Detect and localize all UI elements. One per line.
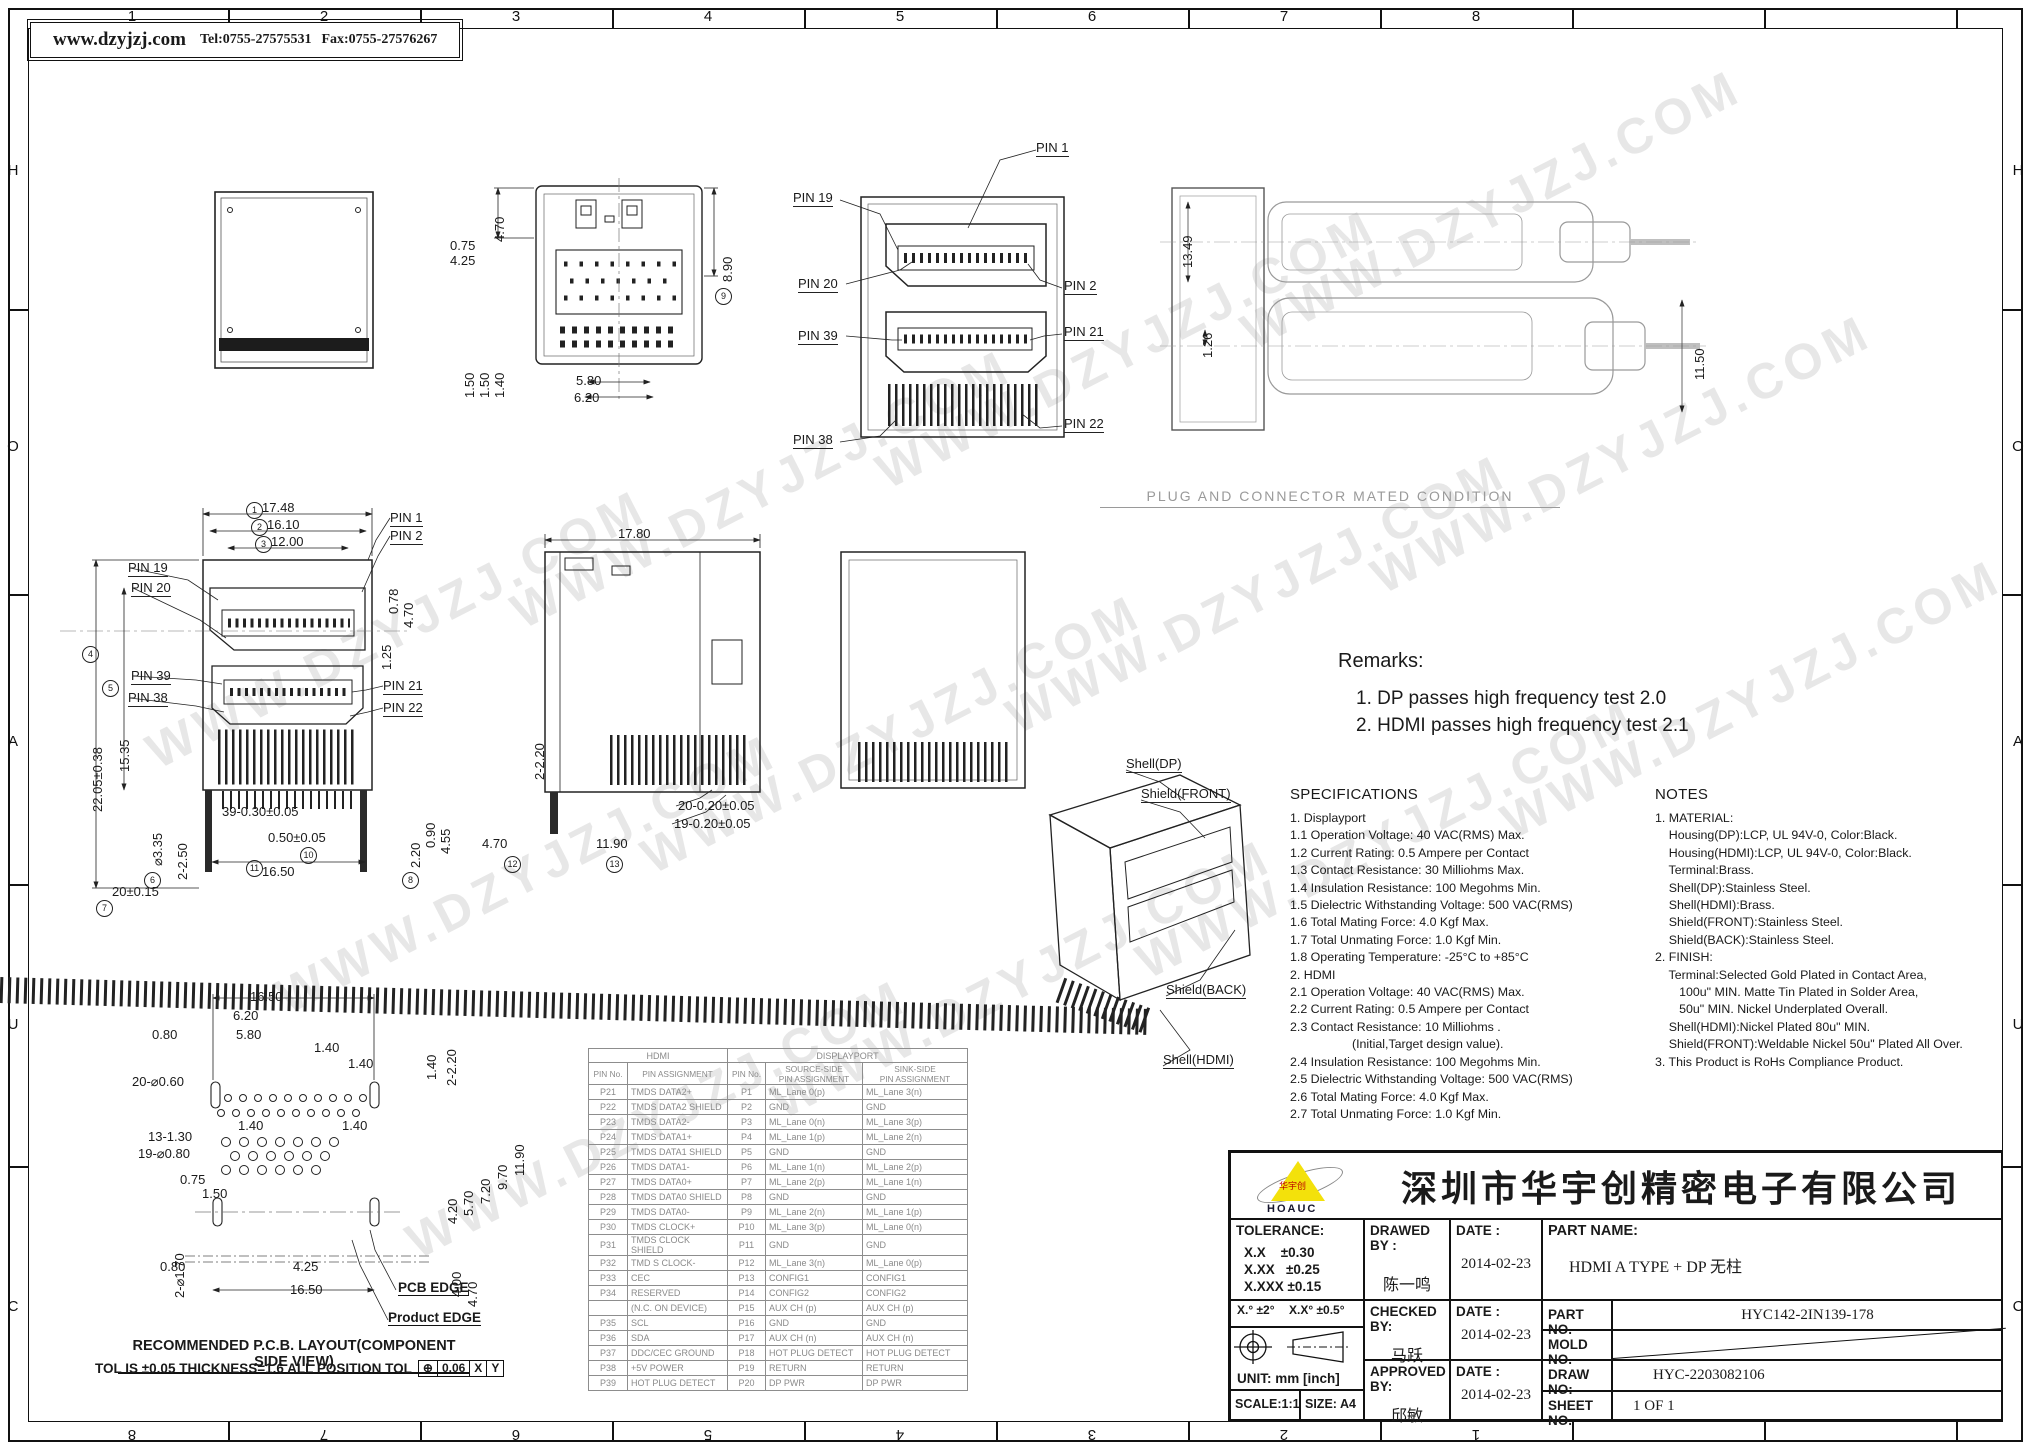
dim-label: 2.20 <box>408 843 423 868</box>
specification-line: 1.8 Operating Temperature: -25°C to +85°… <box>1290 949 1573 966</box>
table-group-displayport: DISPLAYPORT <box>728 1049 968 1063</box>
pin-table-cell: TMD S CLOCK- <box>628 1256 728 1271</box>
pin-table-row: P26TMDS DATA1-P6ML_Lane 1(n)ML_Lane 2(p) <box>589 1160 968 1175</box>
pin-table-cell: ML_Lane 1(n) <box>863 1175 968 1190</box>
dim-label: 15.35 <box>117 739 132 772</box>
pin-table-cell: ML_Lane 1(p) <box>863 1205 968 1220</box>
balloon-number: 5 <box>102 680 119 697</box>
dim-label: 2-2.50 <box>175 843 190 880</box>
pin-table-cell: CONFIG2 <box>766 1286 863 1301</box>
pin-callout-label: PIN 20 <box>798 276 838 293</box>
dim-label: 6.20 <box>233 1008 258 1023</box>
note-line: Shell(DP):Stainless Steel. <box>1655 880 1963 897</box>
pin-table-cell: P7 <box>728 1175 766 1190</box>
angle-tolerance-cell: X.° ±2° X.X° ±0.5° <box>1230 1300 1364 1327</box>
draw-no-label-cell: DRAW NO: <box>1542 1360 1612 1391</box>
pin-table-row: P39HOT PLUG DETECTP20DP PWRDP PWR <box>589 1376 968 1391</box>
pin-table-row: P29TMDS DATA0-P9ML_Lane 2(n)ML_Lane 1(p) <box>589 1205 968 1220</box>
specification-line: 1.7 Total Unmating Force: 1.0 Kgf Min. <box>1290 932 1573 949</box>
pin-callout-label: PIN 22 <box>1064 416 1104 433</box>
size-cell: SIZE: A4 <box>1300 1390 1364 1421</box>
mold-no-blank-strike <box>1613 1328 2006 1359</box>
pin-table-cell: P13 <box>728 1271 766 1286</box>
dim-label: 1.40 <box>348 1056 373 1071</box>
pin-table-row: P24TMDS DATA1+P4ML_Lane 1(p)ML_Lane 2(n) <box>589 1130 968 1145</box>
pin-table-cell: HOT PLUG DETECT <box>628 1376 728 1391</box>
balloon-number: 3 <box>255 536 272 553</box>
pin-table-cell: ML_Lane 0(p) <box>766 1085 863 1100</box>
specification-line: 2.1 Operation Voltage: 40 VAC(RMS) Max. <box>1290 984 1573 1001</box>
specification-line: 1.6 Total Mating Force: 4.0 Kgf Max. <box>1290 914 1573 931</box>
balloon-number: 9 <box>715 288 732 305</box>
dim-label: 19-0.20±0.05 <box>674 816 751 831</box>
specification-line: 2.3 Contact Resistance: 10 Milliohms . <box>1290 1019 1573 1036</box>
pin-table-cell: TMDS DATA1+ <box>628 1130 728 1145</box>
pin-table-cell: P19 <box>728 1361 766 1376</box>
part-no-value: HYC142-2IN139-178 <box>1613 1307 2002 1324</box>
dim-label: 1.40 <box>424 1055 439 1080</box>
product-edge-label: Product EDGE <box>388 1310 481 1326</box>
pin-table-cell: P5 <box>728 1145 766 1160</box>
pcb-holes-row-b <box>222 1138 339 1175</box>
pin-table-cell: P26 <box>589 1160 628 1175</box>
dim-label: ⌀3.35 <box>150 833 166 866</box>
website-text: www.dzyjzj.com <box>53 29 186 51</box>
drawed-by-label: DRAWED BY : <box>1365 1220 1449 1253</box>
remarks-section: Remarks: 1. DP passes high frequency tes… <box>1338 650 1689 739</box>
pin-table-row: P25TMDS DATA1 SHIELDP5GNDGND <box>589 1145 968 1160</box>
pin-callout-label: PIN 2 <box>1064 278 1097 295</box>
dim-label: 1.40 <box>238 1118 263 1133</box>
specification-line: 1.1 Operation Voltage: 40 VAC(RMS) Max. <box>1290 827 1573 844</box>
dim-label: 11.90 <box>596 836 628 851</box>
pin-table-cell: ML_Lane 1(n) <box>766 1160 863 1175</box>
company-logo: 华宇创 HOAUC <box>1249 1157 1349 1217</box>
table-group-hdmi: HDMI <box>589 1049 728 1063</box>
note-line: Shield(BACK):Stainless Steel. <box>1655 932 1963 949</box>
balloon-number: 11 <box>246 860 263 877</box>
dim-label: 4.25 <box>293 1259 318 1274</box>
position-tolerance-frame: ⊕ 0.06 X Y <box>418 1360 504 1377</box>
pin-table-cell: GND <box>863 1190 968 1205</box>
pin-table-cell: RETURN <box>863 1361 968 1376</box>
balloon-number: 6 <box>144 872 161 889</box>
dim-label: 1.50 <box>462 373 477 398</box>
position-tolerance-value: 0.06 <box>438 1361 470 1376</box>
pin-table-cell: AUX CH (p) <box>766 1301 863 1316</box>
specifications-title: SPECIFICATIONS <box>1290 786 1418 803</box>
pin-table-cell: TMDS DATA2 SHIELD <box>628 1100 728 1115</box>
specification-line: 2.5 Dielectric Withstanding Voltage: 500… <box>1290 1071 1573 1088</box>
projection-symbol-icon <box>1231 1328 1361 1366</box>
note-line: 2. FINISH: <box>1655 949 1963 966</box>
pin-table-cell: P16 <box>728 1316 766 1331</box>
notes-title: NOTES <box>1655 786 1708 803</box>
pin-table-cell: RETURN <box>766 1361 863 1376</box>
specification-line: 1. Displayport <box>1290 810 1573 827</box>
pin-table-cell: P18 <box>728 1346 766 1361</box>
pin-table-row: P34RESERVEDP14CONFIG2CONFIG2 <box>589 1286 968 1301</box>
checked-by-label: CHECKED BY: <box>1365 1301 1449 1334</box>
note-line: Shield(FRONT):Weldable Nickel 50u" Plate… <box>1655 1036 1963 1053</box>
date1-value: 2014-02-23 <box>1451 1256 1541 1273</box>
dim-label: 0.90 <box>423 823 438 848</box>
dim-label: 2-2.20 <box>444 1049 459 1086</box>
pin-table-cell: SDA <box>628 1331 728 1346</box>
size-value: SIZE: A4 <box>1301 1391 1363 1411</box>
scale-value: SCALE:1:1 <box>1231 1391 1299 1411</box>
pin-table-cell: GND <box>863 1145 968 1160</box>
balloon-number: 1 <box>246 502 263 519</box>
pin-callout-label: PIN 39 <box>798 328 838 345</box>
sheet-no-value: 1 OF 1 <box>1613 1398 2002 1415</box>
pin-table-cell: P39 <box>589 1376 628 1391</box>
note-line: Shell(HDMI):Brass. <box>1655 897 1963 914</box>
dim-label: 0.80 <box>160 1259 185 1274</box>
dim-label: 4.25 <box>450 253 475 268</box>
pin-table-row: P30TMDS CLOCK+P10ML_Lane 3(p)ML_Lane 0(n… <box>589 1220 968 1235</box>
tolerance-title: TOLERANCE: <box>1231 1220 1363 1238</box>
balloon-number: 8 <box>402 872 419 889</box>
dim-label: 5.70 <box>461 1191 476 1216</box>
dim-label: 9.70 <box>495 1165 510 1190</box>
specifications-list: 1. Displayport1.1 Operation Voltage: 40 … <box>1290 810 1573 1123</box>
dim-label: 4.70 <box>492 217 507 242</box>
pin-table-cell: P4 <box>728 1130 766 1145</box>
note-line: Shell(HDMI):Nickel Plated 80u" MIN. <box>1655 1019 1963 1036</box>
pin-table-cell: GND <box>863 1100 968 1115</box>
balloon-number: 4 <box>82 646 99 663</box>
dim-label: 16.10 <box>267 517 300 532</box>
dim-label: 39-0.30±0.05 <box>222 804 299 819</box>
pin-table-row: P27TMDS DATA0+P7ML_Lane 2(p)ML_Lane 1(n) <box>589 1175 968 1190</box>
approved-by-value: 邱敏 <box>1365 1402 1449 1426</box>
pin-table-cell: P34 <box>589 1286 628 1301</box>
pin-callout-label: PIN 38 <box>128 690 168 707</box>
pin-table-cell: DP PWR <box>863 1376 968 1391</box>
pin-table-cell: P1 <box>728 1085 766 1100</box>
pin-callout-label: PIN 1 <box>1036 140 1069 157</box>
pin-table-cell: P29 <box>589 1205 628 1220</box>
pin-table-cell: P6 <box>728 1160 766 1175</box>
pin-table-cell: ML_Lane 3(p) <box>766 1220 863 1235</box>
pin-table-cell: P24 <box>589 1130 628 1145</box>
pin-table-cell: ML_Lane 0(n) <box>863 1220 968 1235</box>
col-header-dp-sink: SINK-SIDE PIN ASSIGNMENT <box>863 1063 968 1085</box>
pin-table-cell: TMDS CLOCK SHIELD <box>628 1235 728 1256</box>
pin-table-cell: ML_Lane 1(p) <box>766 1130 863 1145</box>
note-line: 50u" MIN. Nickel Underplated Overall. <box>1655 1001 1963 1018</box>
col-header-dp-source: SOURCE-SIDE PIN ASSIGNMENT <box>766 1063 863 1085</box>
pin-table-cell: TMDS DATA1 SHIELD <box>628 1145 728 1160</box>
pin-table-cell: TMDS DATA0 SHIELD <box>628 1190 728 1205</box>
note-line: 3. This Product is RoHs Compliance Produ… <box>1655 1054 1963 1071</box>
remarks-title: Remarks: <box>1338 650 1689 673</box>
datum-y: Y <box>487 1361 503 1376</box>
pin-table-cell: +5V POWER <box>628 1361 728 1376</box>
pin-table-cell: GND <box>766 1316 863 1331</box>
dim-label: 6.20 <box>574 390 599 405</box>
pin-table-cell: TMDS DATA0- <box>628 1205 728 1220</box>
pin-table-cell: ML_Lane 0(p) <box>863 1256 968 1271</box>
pin-table-cell: P12 <box>728 1256 766 1271</box>
drawed-by-value: 陈一鸣 <box>1365 1271 1449 1295</box>
part-name-label: PART NAME: <box>1543 1220 2002 1239</box>
pin-table-cell: P36 <box>589 1331 628 1346</box>
pin-callout-label: PIN 1 <box>390 510 423 527</box>
pin-table-cell: P35 <box>589 1316 628 1331</box>
pin-table-cell: ML_Lane 2(n) <box>766 1205 863 1220</box>
pin-table-row: (N.C. ON DEVICE)P15AUX CH (p)AUX CH (p) <box>589 1301 968 1316</box>
sheet-no-label-cell: SHEET NO. <box>1542 1391 1612 1421</box>
date3-cell: DATE : 2014-02-23 <box>1450 1360 1542 1421</box>
note-line: 100u" MIN. Matte Tin Plated in Solder Ar… <box>1655 984 1963 1001</box>
pcb-edge-label: PCB EDGE <box>398 1280 469 1296</box>
note-line: Housing(HDMI):LCP, UL 94V-0, Color:Black… <box>1655 845 1963 862</box>
date2-label: DATE : <box>1451 1301 1541 1319</box>
pin-callout-label: PIN 21 <box>383 678 423 695</box>
pin-table-cell: GND <box>766 1235 863 1256</box>
balloon-number: 2 <box>251 519 268 536</box>
pin-table-cell: AUX CH (n) <box>766 1331 863 1346</box>
pin-table-cell: TMDS DATA2- <box>628 1115 728 1130</box>
date1-cell: DATE : 2014-02-23 <box>1450 1219 1542 1300</box>
pin-table-cell: DDC/CEC GROUND <box>628 1346 728 1361</box>
dim-label: 16.50 <box>262 864 295 879</box>
dim-label: 19-⌀0.80 <box>138 1146 190 1162</box>
pin-callout-label: PIN 39 <box>131 668 171 685</box>
pin-table-cell: (N.C. ON DEVICE) <box>628 1301 728 1316</box>
dim-label: 5.80 <box>576 373 601 388</box>
dim-label: 16.50 <box>250 989 283 1004</box>
part-name-value: HDMI A TYPE + DP 无柱 <box>1543 1253 2002 1277</box>
header-contact-box: www.dzyjzj.com Tel:0755-27575531 Fax:075… <box>30 22 460 58</box>
col-header-dp-pin: PIN No. <box>728 1063 766 1085</box>
pcb-holes-row-a <box>218 1095 367 1117</box>
side-view-top-art <box>215 192 373 368</box>
pin-callout-label: PIN 19 <box>793 190 833 207</box>
note-line: Housing(DP):LCP, UL 94V-0, Color:Black. <box>1655 827 1963 844</box>
notes-list: 1. MATERIAL: Housing(DP):LCP, UL 94V-0, … <box>1655 810 1963 1071</box>
pin-table-row: P28TMDS DATA0 SHIELDP8GNDGND <box>589 1190 968 1205</box>
dim-label: 20-⌀0.60 <box>132 1074 184 1090</box>
part-no-label-cell: PART NO. <box>1542 1300 1612 1330</box>
pin-table-cell: P33 <box>589 1271 628 1286</box>
specification-line: 2.2 Current Rating: 0.5 Ampere per Conta… <box>1290 1001 1573 1018</box>
dim-label: 1.40 <box>342 1118 367 1133</box>
approved-by-label: APPROVED BY: <box>1365 1361 1449 1394</box>
angle-tol-1: X.° ±2° <box>1231 1303 1275 1317</box>
pin-table-cell: RESERVED <box>628 1286 728 1301</box>
company-name: 深圳市华宇创精密电子有限公司 <box>1371 1153 1991 1219</box>
note-line: Terminal:Selected Gold Plated in Contact… <box>1655 967 1963 984</box>
specification-line: 1.5 Dielectric Withstanding Voltage: 500… <box>1290 897 1573 914</box>
drawed-by-cell: DRAWED BY : 陈一鸣 <box>1364 1219 1450 1300</box>
pin-table-cell: ML_Lane 0(n) <box>766 1115 863 1130</box>
logo-mark-text: 华宇创 <box>1279 1179 1306 1192</box>
part-name-cell: PART NAME: HDMI A TYPE + DP 无柱 <box>1542 1219 2003 1300</box>
pin-table-cell: P17 <box>728 1331 766 1346</box>
remark-line: 2. HDMI passes high frequency test 2.1 <box>1356 712 1689 739</box>
pin-table-row: P21TMDS DATA2+P1ML_Lane 0(p)ML_Lane 3(n) <box>589 1085 968 1100</box>
balloon-number: 13 <box>606 856 623 873</box>
dim-label: 17.80 <box>618 526 651 541</box>
pin-table-cell: HOT PLUG DETECT <box>863 1346 968 1361</box>
pin-table-row: P36SDAP17AUX CH (n)AUX CH (n) <box>589 1331 968 1346</box>
tel-text: Tel:0755-27575531 <box>200 32 311 48</box>
pin-table-cell: P2 <box>728 1100 766 1115</box>
pin-table-cell: ML_Lane 3(p) <box>863 1115 968 1130</box>
fax-text: Fax:0755-27576267 <box>321 32 437 48</box>
remark-line: 1. DP passes high frequency test 2.0 <box>1356 685 1689 712</box>
front-view-art <box>60 508 410 888</box>
dim-label: 4.70 <box>401 603 416 628</box>
dim-label: 0.80 <box>152 1027 177 1042</box>
note-line: Terminal:Brass. <box>1655 862 1963 879</box>
dim-label: 22.05±0.38 <box>90 747 105 812</box>
date2-value: 2014-02-23 <box>1451 1327 1541 1344</box>
dim-label: Shield(FRONT) <box>1141 786 1231 803</box>
pin-table-cell: P14 <box>728 1286 766 1301</box>
pin-table-cell: CONFIG1 <box>766 1271 863 1286</box>
date3-value: 2014-02-23 <box>1451 1387 1541 1404</box>
pin-table-cell: P31 <box>589 1235 628 1256</box>
pin-table-row: P35SCLP16GNDGND <box>589 1316 968 1331</box>
pin-table-cell: ML_Lane 3(n) <box>766 1256 863 1271</box>
pin-table-cell: CONFIG2 <box>863 1286 968 1301</box>
dim-label: 1.50 <box>202 1186 227 1201</box>
dim-label: 0.75 <box>450 238 475 253</box>
pin-table-cell <box>589 1301 628 1316</box>
tolerance-line: X.XX ±0.25 <box>1231 1261 1363 1278</box>
approved-by-cell: APPROVED BY: 邱敏 <box>1364 1360 1450 1421</box>
pin-table-row: P22TMDS DATA2 SHIELDP2GNDGND <box>589 1100 968 1115</box>
dim-label: 13.49 <box>1180 235 1195 268</box>
date3-label: DATE : <box>1451 1361 1541 1379</box>
date1-label: DATE : <box>1451 1220 1541 1238</box>
pin-callout-label: PIN 19 <box>128 560 168 577</box>
dim-label: 20-0.20±0.05 <box>678 798 755 813</box>
sheet-no-label: SHEET NO. <box>1543 1392 1611 1428</box>
pin-table-row: P23TMDS DATA2-P3ML_Lane 0(n)ML_Lane 3(p) <box>589 1115 968 1130</box>
pin-table-cell: AUX CH (n) <box>863 1331 968 1346</box>
specification-line: 2.7 Total Unmating Force: 1.0 Kgf Min. <box>1290 1106 1573 1123</box>
dim-label: 16.50 <box>290 1282 323 1297</box>
pin-table-cell: ML_Lane 3(n) <box>863 1085 968 1100</box>
pin-callout-label: PIN 21 <box>1064 324 1104 341</box>
pin-table-cell: HOT PLUG DETECT <box>766 1346 863 1361</box>
iso-view-art <box>0 770 1250 1066</box>
logo-text: HOAUC <box>1267 1203 1317 1215</box>
dim-label: 17.48 <box>262 500 295 515</box>
dim-label: Shell(DP) <box>1126 756 1182 773</box>
col-header-hdmi-pin: PIN No. <box>589 1063 628 1085</box>
specification-line: 1.2 Current Rating: 0.5 Ampere per Conta… <box>1290 845 1573 862</box>
pin-table-cell: GND <box>863 1235 968 1256</box>
pin-table-cell: TMDS CLOCK+ <box>628 1220 728 1235</box>
checked-by-cell: CHECKED BY: 马跃 <box>1364 1300 1450 1360</box>
pin-table-cell: TMDS DATA2+ <box>628 1085 728 1100</box>
pin-table-cell: ML_Lane 2(n) <box>863 1130 968 1145</box>
pin-table-cell: P3 <box>728 1115 766 1130</box>
pin-callout-label: PIN 2 <box>390 528 423 545</box>
specification-line: (Initial,Target design value). <box>1290 1036 1573 1053</box>
dim-label: 5.80 <box>236 1027 261 1042</box>
pin-table-row: P37DDC/CEC GROUNDP18HOT PLUG DETECTHOT P… <box>589 1346 968 1361</box>
pin-table-cell: GND <box>766 1145 863 1160</box>
scale-cell: SCALE:1:1 <box>1230 1390 1300 1421</box>
pin-table-cell: TMDS DATA0+ <box>628 1175 728 1190</box>
pin-table-cell: CONFIG1 <box>863 1271 968 1286</box>
angle-tol-2: X.X° ±0.5° <box>1279 1303 1345 1317</box>
mated-view-art <box>1160 188 1706 430</box>
balloon-number: 12 <box>504 856 521 873</box>
dim-label: 11.50 <box>1692 348 1707 380</box>
pin-callout-label: PIN 20 <box>131 580 171 597</box>
pin-table-cell: P30 <box>589 1220 628 1235</box>
pin-table-cell: P11 <box>728 1235 766 1256</box>
pin-table-cell: ML_Lane 2(p) <box>766 1175 863 1190</box>
dim-label: 0.50±0.05 <box>268 830 326 845</box>
pin-table-cell: P32 <box>589 1256 628 1271</box>
mold-no-value-cell <box>1612 1330 2003 1360</box>
dim-label: 0.75 <box>180 1172 205 1187</box>
projection-unit-cell: UNIT: mm [inch] <box>1230 1327 1364 1390</box>
dim-label: 7.20 <box>478 1179 493 1204</box>
dim-label: 13-1.30 <box>148 1129 192 1144</box>
pcb-tolerance-note: TOL IS ±0.05 THICKNESS=1.6 ALL POSITION … <box>95 1360 504 1377</box>
company-row: 华宇创 HOAUC 深圳市华宇创精密电子有限公司 <box>1230 1152 2003 1219</box>
pin-table-cell: GND <box>766 1190 863 1205</box>
pin-table-cell: GND <box>863 1316 968 1331</box>
pin-table-cell: TMDS DATA1- <box>628 1160 728 1175</box>
note-line: Shield(FRONT):Stainless Steel. <box>1655 914 1963 931</box>
position-symbol-icon: ⊕ <box>419 1361 438 1376</box>
dim-label: 1.25 <box>379 645 394 670</box>
bottom-view-art <box>494 178 718 402</box>
specification-line: 2.4 Insulation Resistance: 100 Megohms M… <box>1290 1054 1573 1071</box>
pin-table-cell: P21 <box>589 1085 628 1100</box>
pin-table-row: P38+5V POWERP19RETURNRETURN <box>589 1361 968 1376</box>
pin-table-cell: SCL <box>628 1316 728 1331</box>
sheet-no-value-cell: 1 OF 1 <box>1612 1391 2003 1421</box>
pin-callout-label: PIN 38 <box>793 432 833 449</box>
dim-label: 1.26 <box>1200 333 1215 358</box>
pin-table-row: P31TMDS CLOCK SHIELDP11GNDGND <box>589 1235 968 1256</box>
dim-label: 8.90 <box>720 257 735 282</box>
dim-label: 4.20 <box>445 1199 460 1224</box>
pin-table-cell: P15 <box>728 1301 766 1316</box>
pin-table-cell: P9 <box>728 1205 766 1220</box>
back-view-art <box>841 552 1025 788</box>
balloon-number: 10 <box>300 847 317 864</box>
dim-label: 12.00 <box>271 534 304 549</box>
pin-callout-label: PIN 22 <box>383 700 423 717</box>
dim-label: 0.78 <box>386 589 401 614</box>
title-block: 华宇创 HOAUC 深圳市华宇创精密电子有限公司 TOLERANCE: X.X … <box>1228 1150 2003 1421</box>
pin-table-cell: P37 <box>589 1346 628 1361</box>
dim-label: 1.40 <box>492 373 507 398</box>
draw-no-value-cell: HYC-2203082106 <box>1612 1360 2003 1391</box>
datum-x: X <box>470 1361 487 1376</box>
pin-table-cell: P28 <box>589 1190 628 1205</box>
pin-table-cell: AUX CH (p) <box>863 1301 968 1316</box>
pin-table-cell: GND <box>766 1100 863 1115</box>
engineering-drawing-sheet: WWW.DZYJZJ.COMWWW.DZYJZJ.COMWWW.DZYJZJ.C… <box>0 0 2031 1450</box>
dim-label: 4.55 <box>438 829 453 854</box>
tolerance-line: X.X ±0.30 <box>1231 1244 1363 1261</box>
specification-line: 1.3 Contact Resistance: 30 Milliohms Max… <box>1290 862 1573 879</box>
